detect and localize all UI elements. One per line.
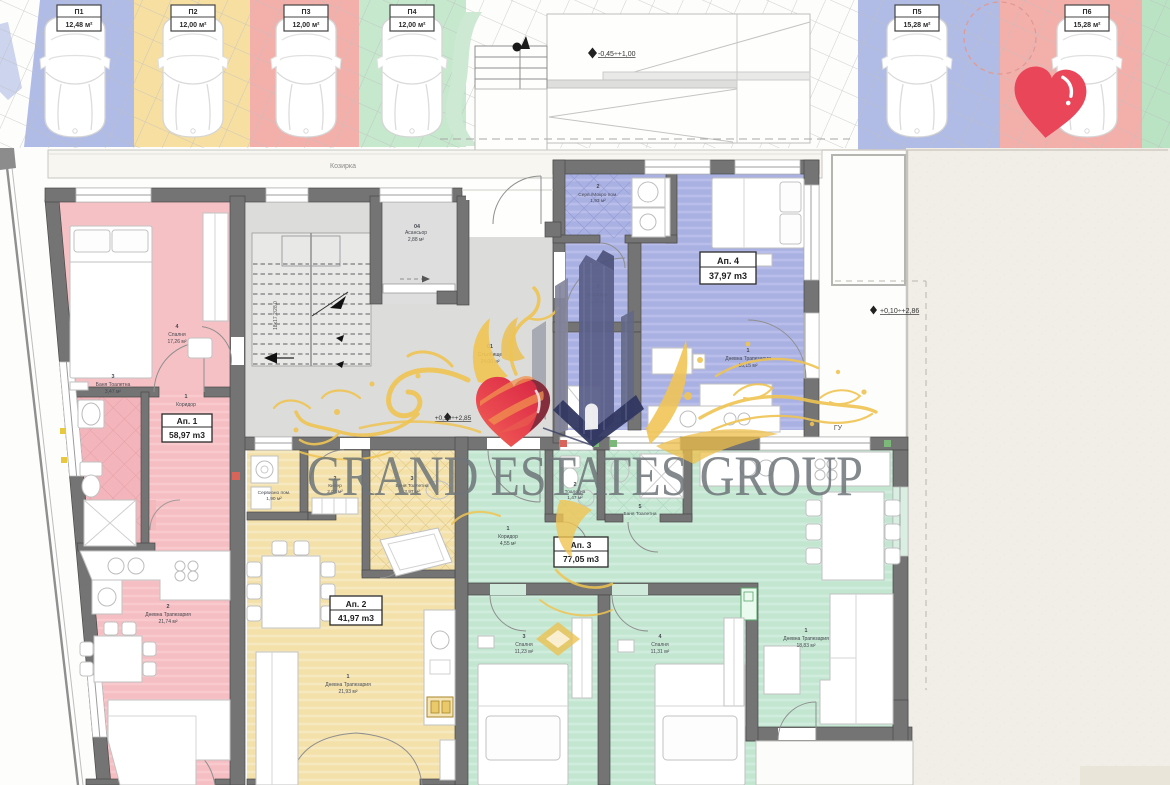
svg-text:Баня Тоалетна: Баня Тоалетна <box>623 511 656 517</box>
svg-text:15,28 м²: 15,28 м² <box>1074 22 1102 29</box>
svg-text:Дневна Трапезария: Дневна Трапезария <box>325 682 371 688</box>
svg-text:Спалня: Спалня <box>168 332 186 338</box>
svg-text:1: 1 <box>185 394 188 400</box>
svg-text:П1: П1 <box>75 9 84 16</box>
svg-text:11,31 м²: 11,31 м² <box>651 649 670 655</box>
svg-text:Ап. 3: Ап. 3 <box>571 540 592 550</box>
svg-text:Ап. 1: Ап. 1 <box>177 416 198 426</box>
svg-text:П4: П4 <box>408 9 417 16</box>
svg-text:18,83 м²: 18,83 м² <box>796 643 815 649</box>
svg-text:12,00 м²: 12,00 м² <box>399 22 427 29</box>
svg-text:П2: П2 <box>189 9 198 16</box>
svg-text:П6: П6 <box>1083 9 1092 16</box>
svg-text:4: 4 <box>659 634 662 640</box>
svg-text:Коридор: Коридор <box>498 534 518 540</box>
svg-text:1,90 м²: 1,90 м² <box>266 496 282 502</box>
svg-text:12,48 м²: 12,48 м² <box>66 22 94 29</box>
svg-text:4: 4 <box>176 324 179 330</box>
svg-text:2: 2 <box>597 184 600 190</box>
svg-text:3: 3 <box>112 374 115 380</box>
svg-text:1: 1 <box>347 674 350 680</box>
svg-text:3,47 м²: 3,47 м² <box>105 389 122 395</box>
svg-text:12,00 м²: 12,00 м² <box>180 22 208 29</box>
svg-text:77,05 m3: 77,05 m3 <box>563 554 599 564</box>
svg-text:18x17,2/28,0: 18x17,2/28,0 <box>273 301 279 330</box>
svg-text:Спалня: Спалня <box>651 642 669 648</box>
svg-text:Ап. 4: Ап. 4 <box>717 256 739 266</box>
svg-text:2,88 м²: 2,88 м² <box>408 237 425 243</box>
svg-text:15,28 м²: 15,28 м² <box>904 22 932 29</box>
svg-text:+0,10÷+2,86: +0,10÷+2,86 <box>880 308 919 315</box>
svg-text:17,26 м²: 17,26 м² <box>167 339 186 345</box>
svg-text:ГУ: ГУ <box>834 425 843 432</box>
svg-text:+0,10÷+2,85: +0,10÷+2,85 <box>435 415 472 422</box>
svg-text:1,93 м²: 1,93 м² <box>590 198 606 204</box>
svg-text:Дневна Трапезария: Дневна Трапезария <box>783 636 829 642</box>
svg-text:-0,45÷+1,00: -0,45÷+1,00 <box>598 51 636 58</box>
svg-text:1: 1 <box>507 526 510 532</box>
svg-text:Коридор: Коридор <box>176 402 196 408</box>
svg-text:П5: П5 <box>913 9 922 16</box>
svg-text:1: 1 <box>805 628 808 634</box>
svg-text:37,97 m3: 37,97 m3 <box>709 271 747 281</box>
svg-text:Козирка: Козирка <box>330 163 356 170</box>
svg-text:GRAND ESTATES GROUP: GRAND ESTATES GROUP <box>307 445 863 508</box>
svg-text:Баня Тоалетна: Баня Тоалетна <box>96 382 131 388</box>
svg-text:Сервизно пом.: Сервизно пом. <box>258 490 291 496</box>
svg-text:П3: П3 <box>302 9 311 16</box>
svg-text:Спалня: Спалня <box>515 642 533 648</box>
svg-text:2: 2 <box>167 604 170 610</box>
svg-text:Дневна Трапезария: Дневна Трапезария <box>145 612 191 618</box>
svg-text:4,55 м²: 4,55 м² <box>500 541 517 547</box>
svg-text:Серв./Мокро пом.: Серв./Мокро пом. <box>578 192 617 198</box>
svg-text:21,93 м²: 21,93 м² <box>338 689 357 695</box>
svg-text:1: 1 <box>747 348 750 354</box>
svg-text:Асансьор: Асансьор <box>405 230 427 236</box>
svg-text:41,97 m3: 41,97 m3 <box>338 613 374 623</box>
svg-text:58,97 m3: 58,97 m3 <box>169 430 205 440</box>
svg-text:11,23 м²: 11,23 м² <box>515 649 534 655</box>
svg-text:12,00 м²: 12,00 м² <box>293 22 321 29</box>
svg-text:3: 3 <box>523 634 526 640</box>
svg-text:Ап. 2: Ап. 2 <box>346 599 367 609</box>
svg-text:21,74 м²: 21,74 м² <box>158 619 177 625</box>
